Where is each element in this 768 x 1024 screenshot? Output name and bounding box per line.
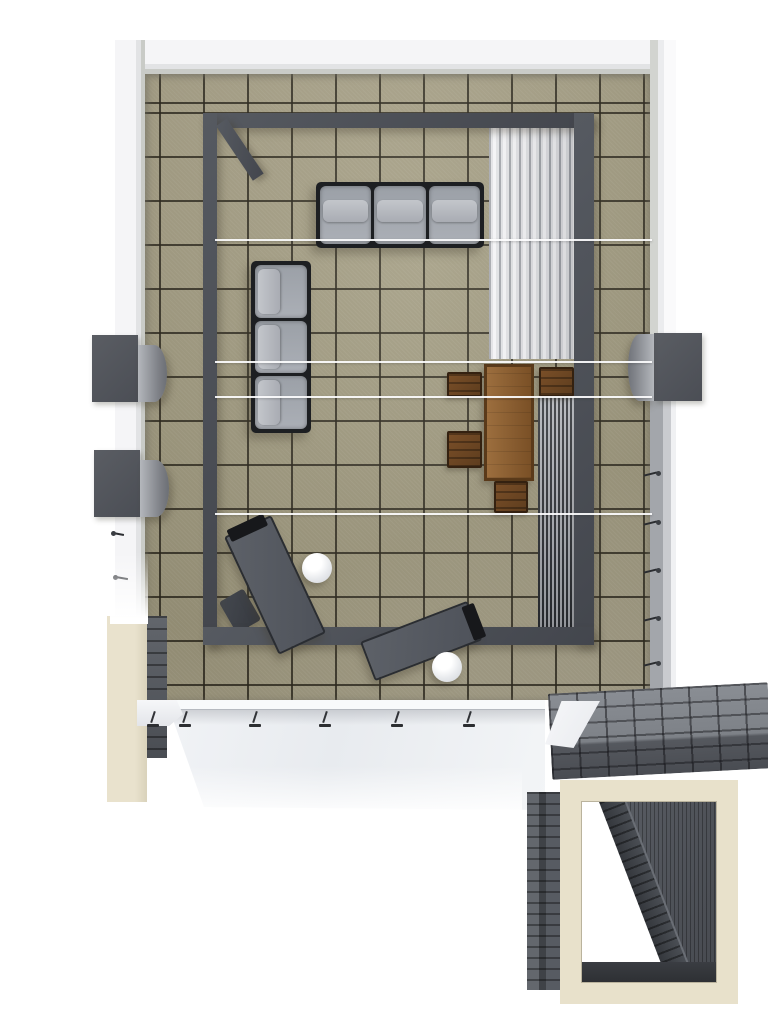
canopy-stanchion bbox=[146, 711, 160, 729]
sofa-cushion bbox=[255, 265, 307, 318]
stair-base bbox=[582, 962, 716, 982]
tension-wire bbox=[215, 396, 652, 398]
dining-chair bbox=[447, 372, 482, 397]
wall-planter-box bbox=[94, 450, 140, 517]
railing-pin bbox=[644, 567, 662, 575]
stair-portal-legs bbox=[527, 792, 562, 990]
dining-chair bbox=[447, 431, 482, 468]
glass-canopy bbox=[160, 700, 545, 810]
canopy-stanchion bbox=[318, 711, 332, 729]
louver-panel-light bbox=[489, 126, 574, 359]
stair-portal bbox=[560, 780, 738, 1004]
canopy-stanchion bbox=[462, 711, 476, 729]
wall-planter-box bbox=[92, 335, 138, 402]
stone-clad-wall bbox=[147, 616, 167, 758]
tension-wire bbox=[215, 361, 652, 363]
sofa-cushion bbox=[374, 186, 425, 244]
sofa-cushion bbox=[429, 186, 480, 244]
stair-opening bbox=[582, 802, 716, 982]
wall-hook bbox=[113, 573, 132, 583]
wall-top bbox=[115, 40, 676, 74]
sofa-cushion bbox=[255, 321, 307, 374]
sofa-cushion bbox=[255, 376, 307, 429]
tension-wire bbox=[215, 513, 652, 515]
wall-right bbox=[650, 40, 676, 342]
tension-wire bbox=[215, 239, 652, 241]
terrace-floorplan-render bbox=[0, 0, 768, 1024]
dining-table bbox=[484, 364, 534, 481]
pergola-bar-left bbox=[203, 113, 217, 645]
canopy-stanchion bbox=[390, 711, 404, 729]
canopy-stanchion bbox=[178, 711, 192, 729]
railing-pin bbox=[644, 519, 662, 527]
railing-pin bbox=[644, 660, 662, 668]
pergola-bar-top bbox=[203, 113, 594, 128]
wall-hook bbox=[111, 529, 128, 539]
dining-chair bbox=[539, 367, 574, 397]
round-side-table bbox=[302, 553, 332, 583]
wall-planter-box bbox=[654, 333, 702, 401]
round-side-table bbox=[432, 652, 462, 682]
railing-pin bbox=[644, 615, 662, 623]
dining-chair bbox=[494, 481, 528, 513]
sofa-cushion bbox=[320, 186, 371, 244]
railing-pin bbox=[644, 470, 662, 478]
pergola-bar-right bbox=[574, 113, 594, 645]
canopy-stanchion bbox=[248, 711, 262, 729]
sofa-three-seat-vertical bbox=[251, 261, 311, 433]
